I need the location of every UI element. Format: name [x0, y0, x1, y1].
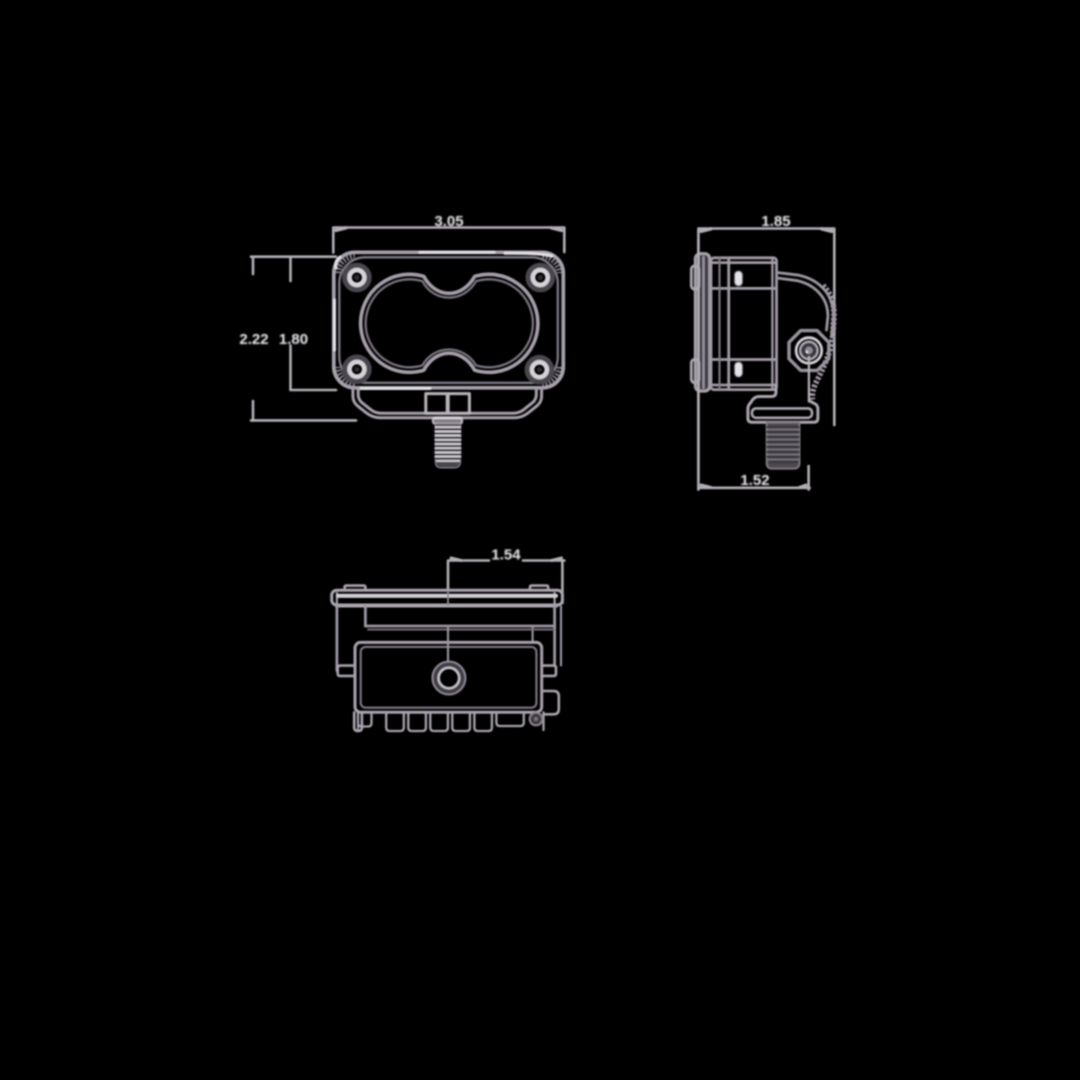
svg-text:1.54: 1.54 — [491, 547, 521, 564]
svg-text:1.80: 1.80 — [279, 331, 308, 348]
svg-text:2.22: 2.22 — [239, 331, 268, 348]
svg-text:3.05: 3.05 — [434, 213, 463, 230]
svg-text:1.85: 1.85 — [761, 213, 790, 230]
svg-text:1.52: 1.52 — [740, 472, 769, 489]
